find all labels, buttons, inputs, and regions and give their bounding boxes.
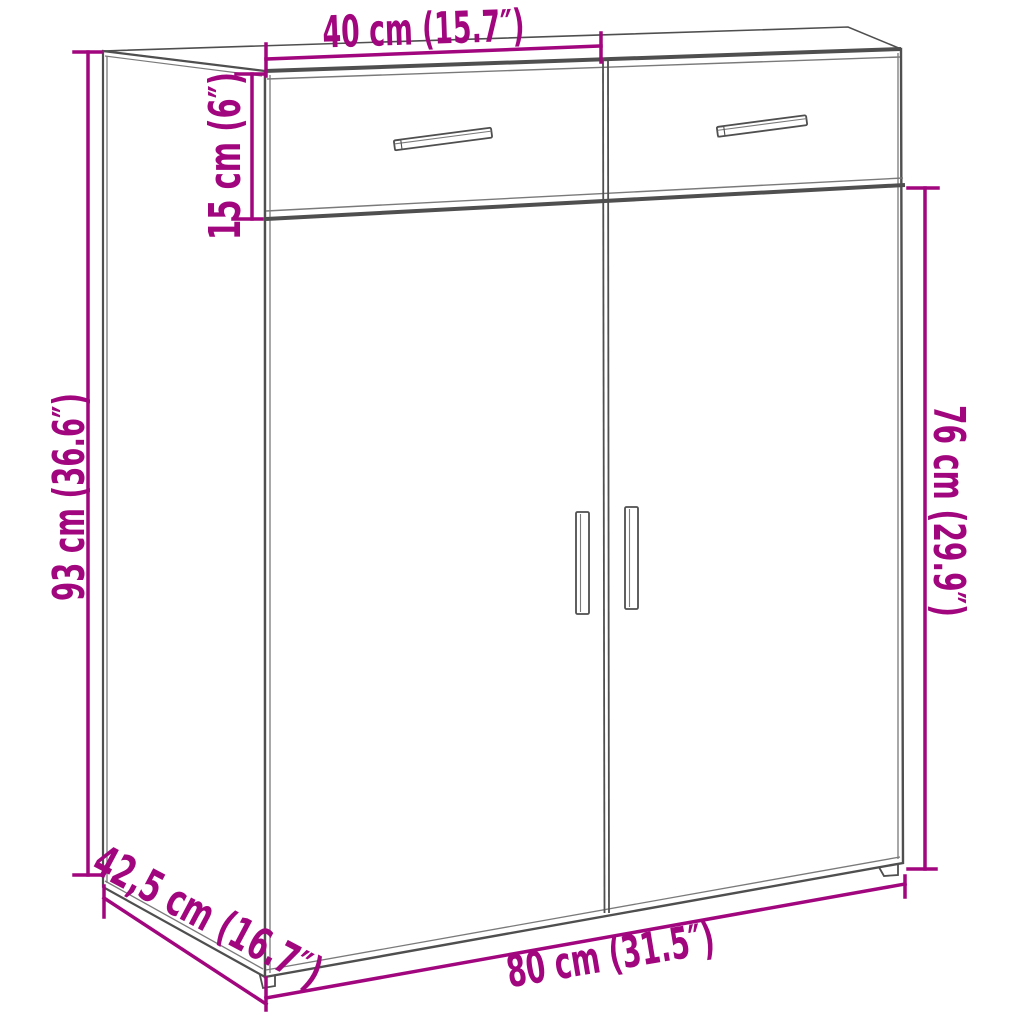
left-door-handle	[576, 512, 589, 614]
dimension-total-height: 93 cm (36.6″)	[44, 52, 101, 875]
dimension-door-height: 76 cm (29.9″)	[908, 188, 974, 869]
right-door-handle	[625, 507, 638, 609]
diagram-canvas: 93 cm (36.6″) 15 cm (6″) 40 cm (15.7″) 7…	[0, 0, 1024, 1024]
dimension-label-top-width: 40 cm (15.7″)	[322, 0, 526, 58]
center-divider-right-line	[608, 59, 609, 913]
dimension-label-drawer-height: 15 cm (6″)	[200, 72, 251, 240]
dimension-label-total-height: 93 cm (36.6″)	[44, 393, 95, 601]
dimension-label-door-height: 76 cm (29.9″)	[923, 405, 974, 617]
sideboard-dimension-diagram: 93 cm (36.6″) 15 cm (6″) 40 cm (15.7″) 7…	[0, 0, 1024, 1024]
